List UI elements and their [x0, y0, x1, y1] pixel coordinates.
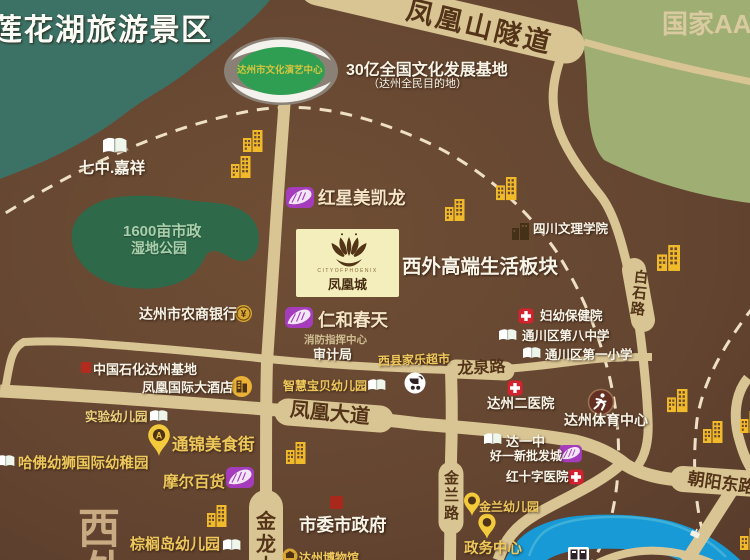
svg-text:A: A	[156, 430, 163, 440]
svg-text:¥: ¥	[241, 309, 247, 320]
